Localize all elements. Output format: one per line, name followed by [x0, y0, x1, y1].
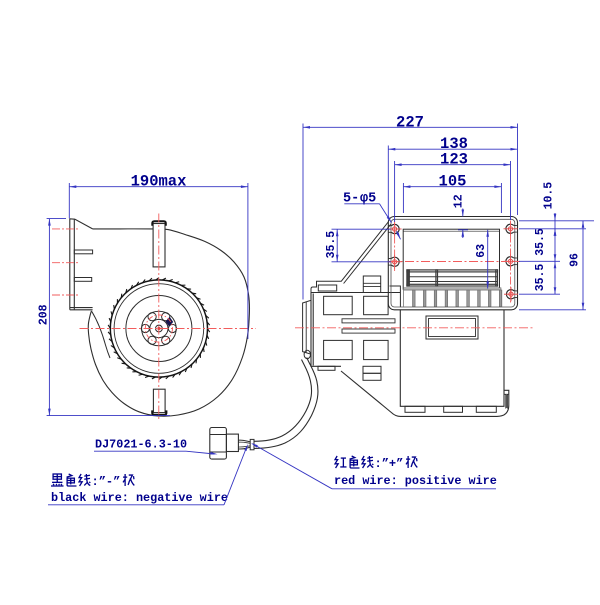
svg-text:35.5: 35.5 — [534, 264, 547, 292]
svg-text:63: 63 — [475, 244, 488, 258]
svg-text:227: 227 — [396, 113, 424, 131]
svg-text:red wire: positive wire: red wire: positive wire — [334, 474, 497, 488]
svg-text:35.5: 35.5 — [325, 231, 338, 259]
svg-text:96: 96 — [569, 253, 582, 267]
svg-text:10.5: 10.5 — [543, 182, 556, 210]
svg-text:black wire: negative wire: black wire: negative wire — [51, 491, 228, 505]
svg-text::”-”: :”-” — [92, 475, 121, 489]
svg-text:DJ7021-6.3-10: DJ7021-6.3-10 — [95, 438, 187, 452]
svg-text:105: 105 — [439, 173, 467, 191]
svg-text:35.5: 35.5 — [534, 228, 547, 256]
svg-text:208: 208 — [37, 304, 50, 325]
svg-text:123: 123 — [440, 151, 468, 169]
svg-text:12: 12 — [452, 194, 465, 208]
svg-text:190max: 190max — [131, 173, 187, 191]
svg-text::”+”: :”+” — [375, 457, 404, 471]
